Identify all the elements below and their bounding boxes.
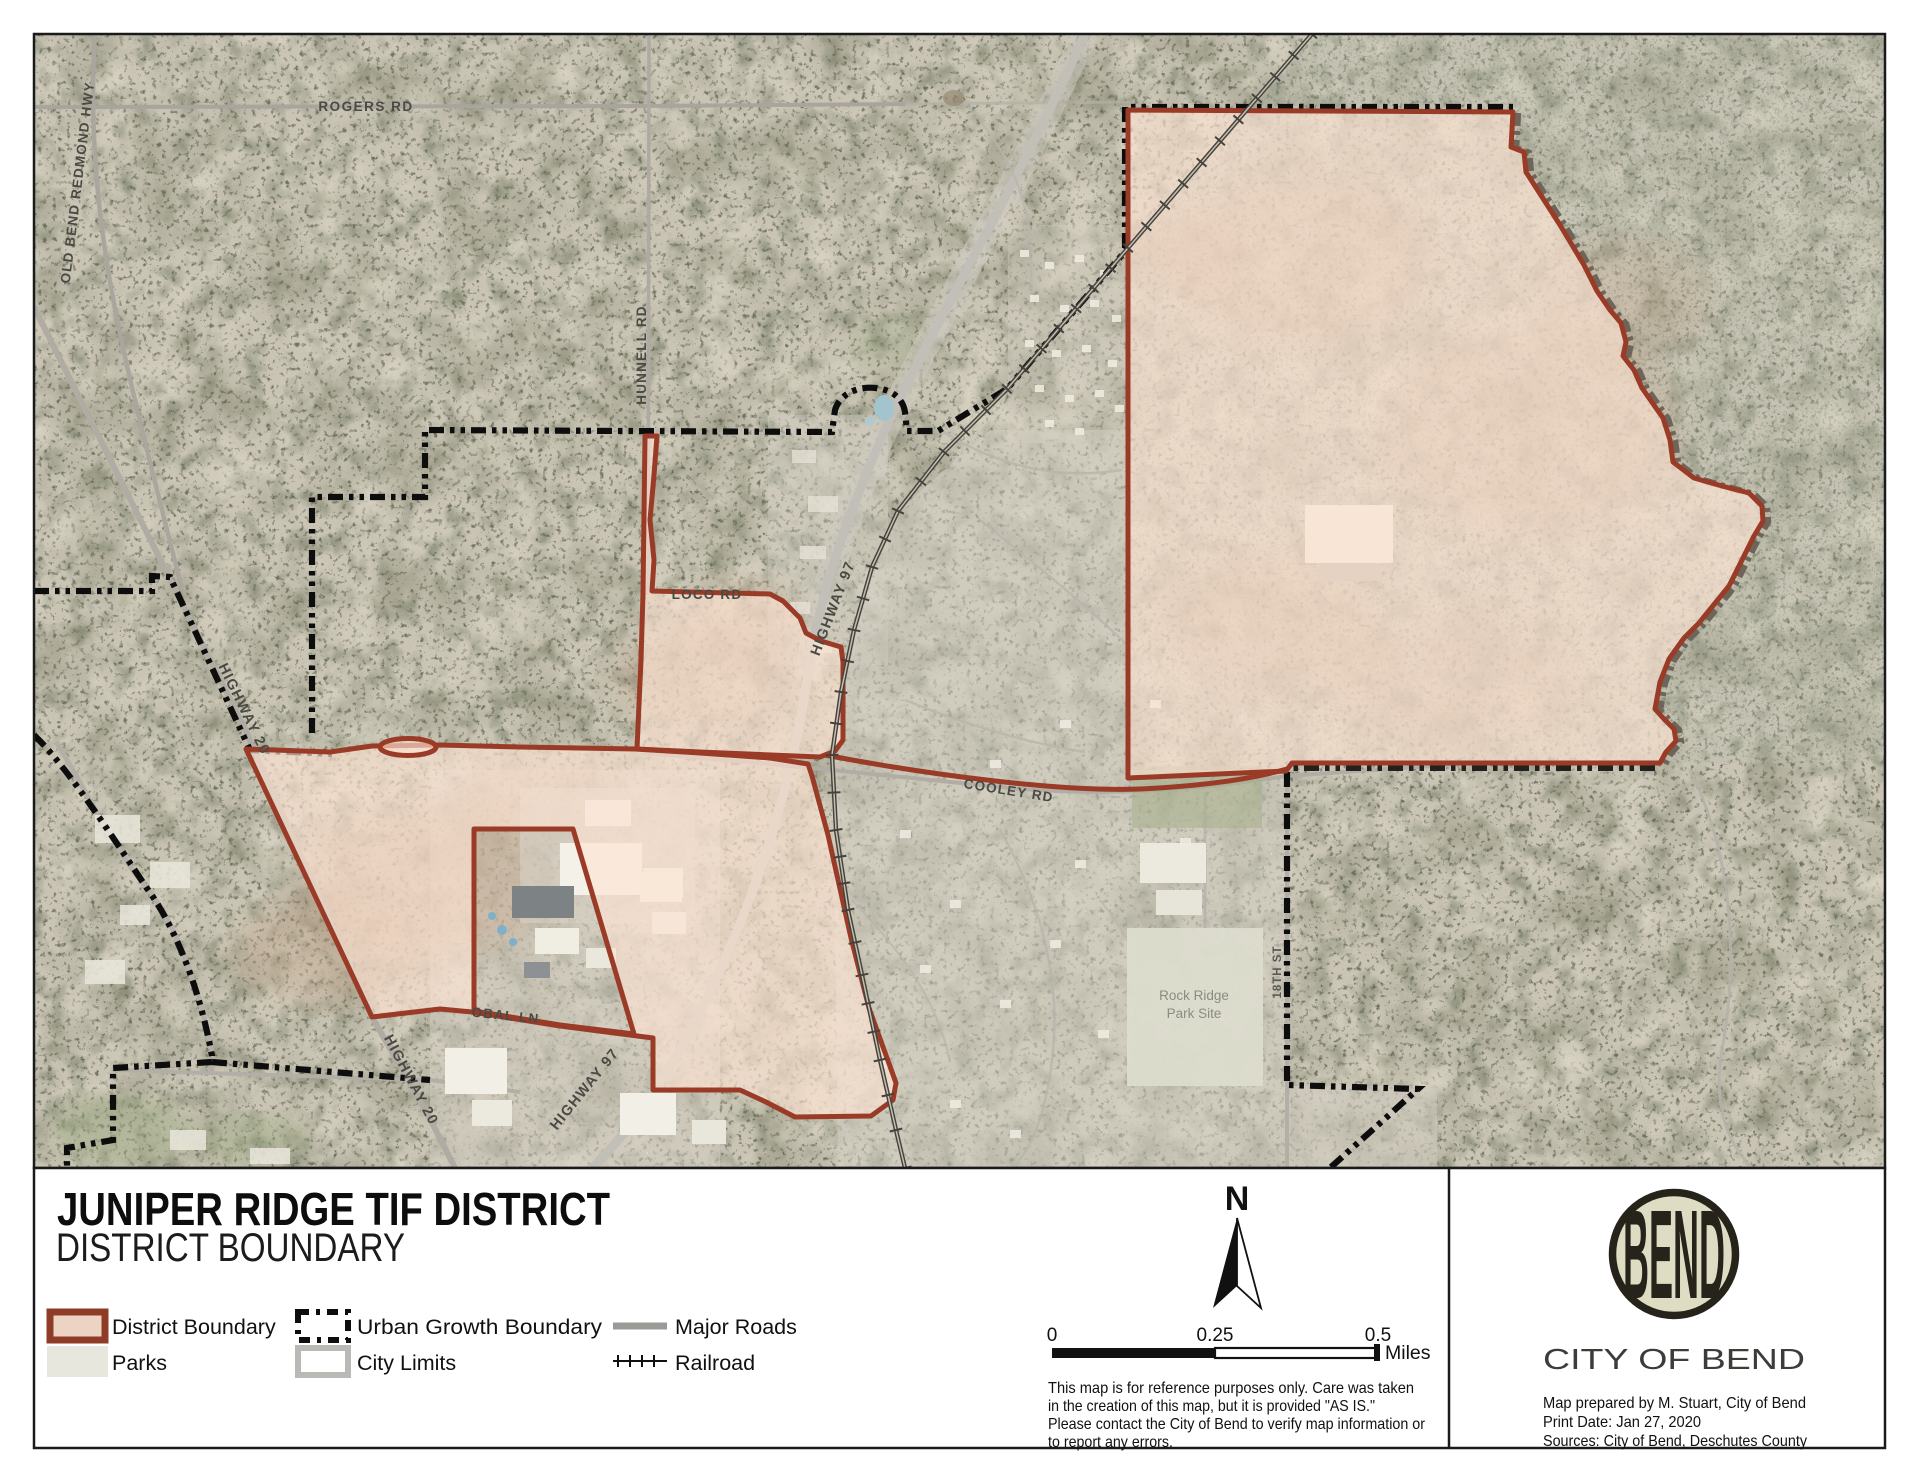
svg-text:Print Date: Jan 27, 2020: Print Date: Jan 27, 2020 [1543,1414,1701,1431]
svg-text:to report any errors.: to report any errors. [1048,1434,1173,1451]
svg-text:N: N [1225,1180,1250,1218]
svg-text:Map prepared by M. Stuart, Ci: Map prepared by M. Stuart, City of Bend [1543,1395,1806,1412]
svg-text:City Limits: City Limits [357,1351,456,1375]
svg-text:DISTRICT BOUNDARY: DISTRICT BOUNDARY [56,1226,405,1270]
svg-text:CITY OF BEND: CITY OF BEND [1543,1344,1805,1376]
svg-text:Sources: City of Bend, Deschut: Sources: City of Bend, Deschutes County [1543,1433,1807,1450]
svg-text:in the creation of this map, b: in the creation of this map, but it is p… [1048,1398,1375,1415]
svg-text:ROGERS RD: ROGERS RD [318,99,413,114]
svg-text:Miles: Miles [1385,1342,1431,1364]
svg-text:Park Site: Park Site [1167,1006,1222,1021]
svg-text:Please contact the City of Ben: Please contact the City of Bend to verif… [1048,1416,1426,1433]
svg-text:This map is for reference purp: This map is for reference purposes only.… [1048,1380,1414,1397]
svg-text:18TH ST: 18TH ST [1272,945,1284,998]
svg-text:Railroad: Railroad [675,1351,755,1375]
svg-text:Parks: Parks [112,1351,167,1375]
svg-text:BEND: BEND [1623,1184,1725,1325]
svg-text:0: 0 [1047,1325,1058,1346]
svg-text:HUNNELL RD: HUNNELL RD [634,305,649,405]
svg-text:District Boundary: District Boundary [112,1315,276,1339]
svg-text:Major Roads: Major Roads [675,1315,797,1339]
svg-text:Rock Ridge: Rock Ridge [1159,988,1229,1003]
svg-text:LOCO RD: LOCO RD [672,587,743,602]
svg-text:0.25: 0.25 [1197,1325,1234,1346]
svg-text:Urban Growth Boundary: Urban Growth Boundary [357,1315,602,1339]
